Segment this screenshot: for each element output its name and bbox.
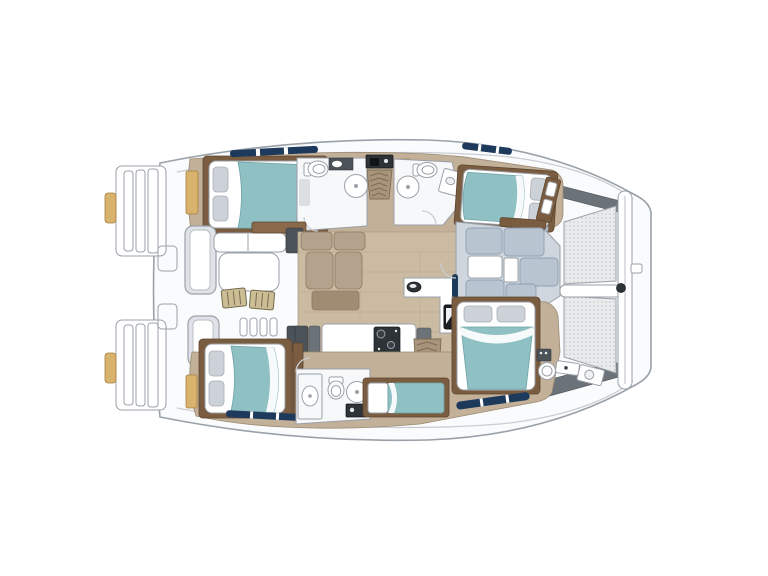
deck-chair: [249, 290, 274, 310]
fwd-lounge: [441, 217, 560, 306]
stairs: [367, 170, 392, 199]
pillow: [209, 351, 224, 376]
lounge-cushion: [466, 228, 502, 254]
lounge-table: [504, 258, 518, 282]
sink: [332, 161, 342, 167]
swim-platform-starboard: [105, 320, 166, 410]
toilet: [539, 363, 556, 380]
berth-head: [368, 383, 388, 413]
trampoline-center-beam: [560, 285, 622, 297]
lounge-table: [468, 256, 502, 278]
fender-pad: [105, 353, 116, 383]
catamaran-floorplan: [0, 0, 768, 576]
single-berth: [363, 378, 449, 417]
bow-cleat: [631, 264, 642, 273]
lounge-cushion: [520, 258, 558, 286]
bow-vanity: [537, 349, 551, 361]
shower-drain: [354, 184, 358, 188]
pillow: [213, 167, 228, 192]
bath-mat: [299, 179, 310, 206]
locker: [186, 171, 198, 214]
swim-platform-port: [105, 166, 166, 256]
head-aft-port: [297, 158, 368, 231]
shower-drain: [406, 185, 410, 189]
pillow: [213, 196, 228, 221]
pillow: [209, 381, 224, 406]
lounge-cushion: [504, 228, 544, 256]
cabin-aft-starboard: [186, 339, 303, 418]
floorplan-canvas: [0, 0, 768, 576]
cabin-fwd-starboard: [452, 297, 540, 394]
cockpit-bench-top: [214, 233, 286, 252]
stove: [374, 327, 400, 354]
pillow: [464, 306, 492, 322]
coffee-table: [312, 291, 359, 310]
locker: [186, 375, 197, 408]
shower-drain: [355, 390, 359, 394]
deck-chair: [221, 288, 247, 308]
fender-pad: [105, 193, 116, 223]
cockpit-table: [219, 253, 279, 291]
forestay-fitting: [617, 284, 626, 293]
pillow: [497, 306, 525, 322]
